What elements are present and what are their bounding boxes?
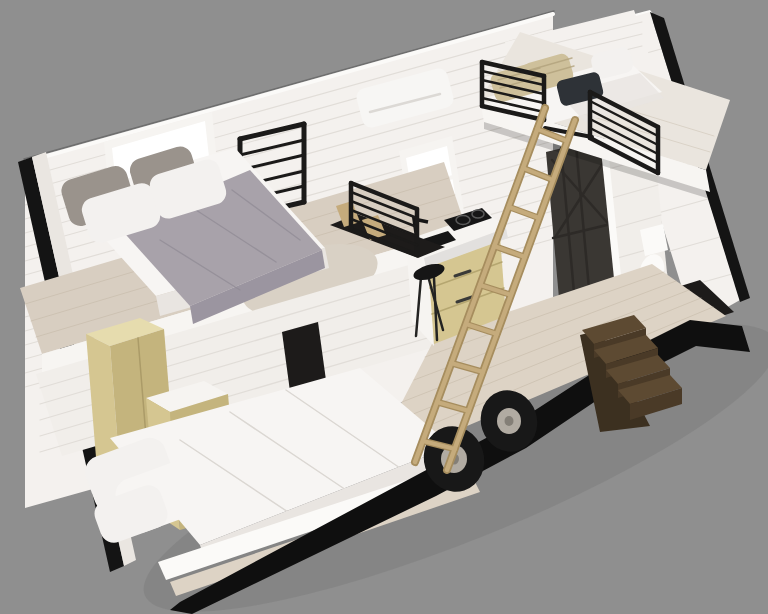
tiny-house-render xyxy=(0,0,768,614)
render-canvas xyxy=(0,0,768,614)
hub-cap xyxy=(505,416,514,426)
